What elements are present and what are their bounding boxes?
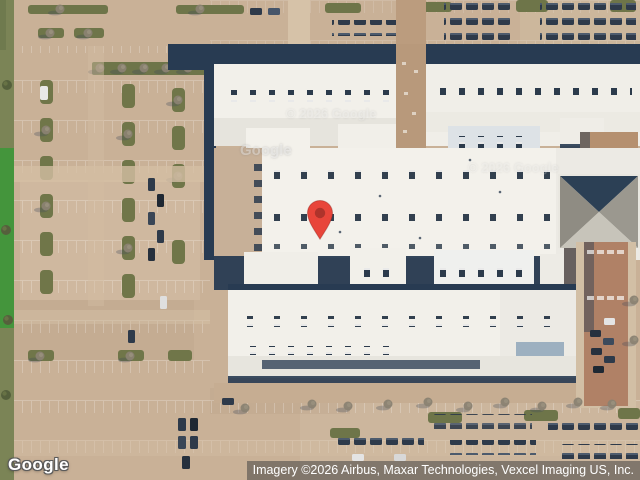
tile-watermark-copyright: © 2026 Google: [468, 160, 559, 175]
map-canvas[interactable]: Google © 2026 Google © 2026 Google Googl…: [0, 0, 640, 480]
map-pin-icon: [306, 199, 334, 244]
tile-watermark-google: Google: [240, 142, 292, 159]
pin-body: [308, 201, 333, 240]
google-logo[interactable]: Google: [8, 455, 69, 475]
tile-watermark-copyright: © 2026 Google: [286, 106, 377, 121]
map-pin[interactable]: [306, 199, 334, 244]
pin-inner-circle: [315, 208, 325, 218]
imagery-attribution: Imagery ©2026 Airbus, Maxar Technologies…: [247, 461, 640, 480]
